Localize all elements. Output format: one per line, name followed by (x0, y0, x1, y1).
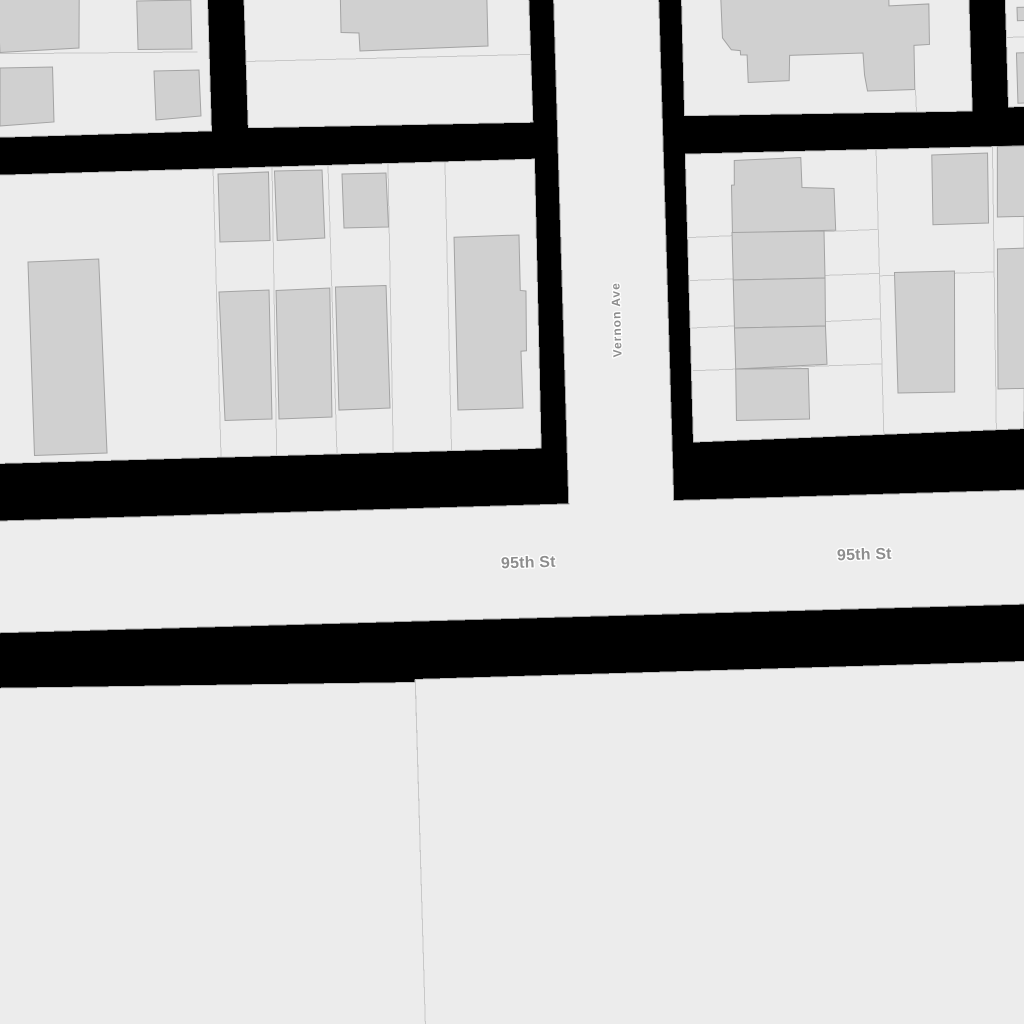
svg-text:95th St: 95th St (837, 546, 893, 565)
svg-text:95th St: 95th St (501, 554, 557, 573)
svg-text:Vernon Ave: Vernon Ave (608, 282, 624, 358)
